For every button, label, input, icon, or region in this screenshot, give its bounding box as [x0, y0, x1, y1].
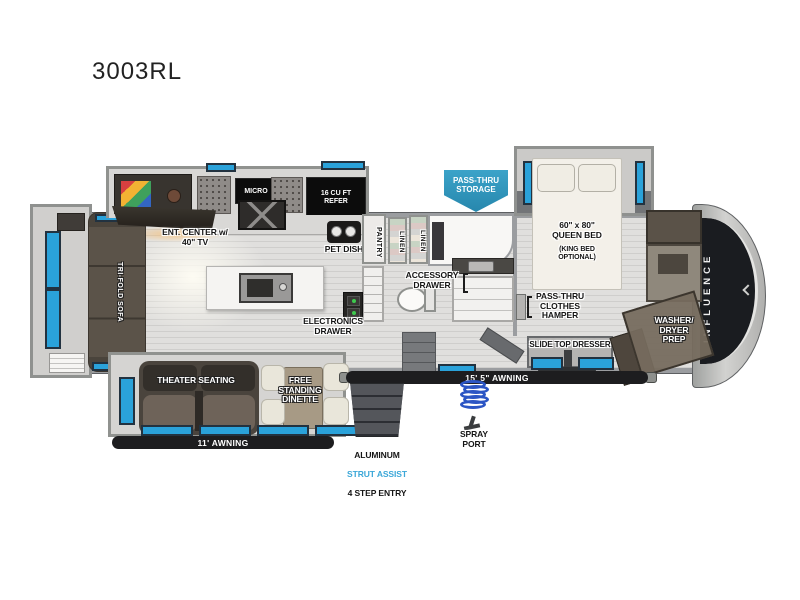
led-light — [352, 299, 356, 303]
floor-mat — [578, 357, 614, 370]
entry-steps — [349, 383, 405, 437]
drawer-stack — [362, 266, 384, 322]
entry-steps-label: ALUMINUM STRUT ASSIST 4 STEP ENTRY — [322, 441, 432, 508]
washer-dryer-label: WASHER/ DRYER PREP — [648, 316, 700, 345]
pillow — [537, 164, 575, 192]
faucet — [279, 283, 287, 291]
entry-door-landing — [402, 332, 436, 372]
dish-bowl — [331, 226, 342, 237]
label-bracket — [527, 296, 532, 318]
kitchen-window — [321, 161, 365, 170]
king-option-label: (KING BED OPTIONAL) — [537, 246, 617, 262]
floorplan-canvas: 3003RL TRI-FOLD SOFA MICRO 16 CU FT REFE… — [0, 0, 800, 600]
vanity-sink — [468, 261, 494, 272]
hamper-label: PASS-THRU CLOTHES HAMPER — [534, 292, 586, 321]
rear-awning: 11' AWNING — [112, 436, 334, 449]
pet-dish-label: PET DISH — [320, 245, 368, 255]
living-window — [119, 377, 135, 425]
dresser-label: SLIDE TOP DRESSER — [528, 341, 612, 350]
floor-mat — [141, 425, 193, 436]
pet-dish — [327, 221, 361, 243]
tri-fold-sofa-label: TRI-FOLD SOFA — [107, 246, 123, 338]
dish-bowl — [345, 226, 356, 237]
refrigerator: 16 CU FT REFER — [306, 177, 366, 219]
theater-seating-label: THEATER SEATING — [136, 376, 256, 386]
entry-label-line2: STRUT ASSIST — [322, 470, 432, 480]
label-bracket — [463, 273, 468, 293]
ent-center-label: ENT. CENTER w/ 40" TV — [140, 228, 250, 247]
linen-label: LINEN — [390, 226, 405, 258]
sink-basin — [247, 279, 273, 297]
pass-thru-storage-banner: PASS-THRU STORAGE — [444, 170, 508, 212]
blanket-stack — [49, 353, 85, 373]
range-stove — [238, 200, 286, 230]
shower-fixture — [432, 222, 444, 260]
corner-cabinet — [57, 213, 85, 231]
rear-sofa-slide — [30, 204, 92, 378]
rear-window-mullion — [45, 287, 61, 291]
shelf-item — [658, 254, 688, 274]
speaker-panel — [197, 176, 231, 214]
spray-port-label: SPRAY PORT — [452, 430, 496, 449]
floor-mat — [199, 425, 251, 436]
clothes-hamper — [516, 294, 526, 320]
bedroom-window — [635, 161, 645, 205]
linen-label: LINEN — [411, 224, 426, 258]
overhead-cabinet — [646, 210, 702, 244]
tv-screen — [121, 181, 151, 207]
entry-label-line1: ALUMINUM — [322, 451, 432, 461]
kitchen-sink — [239, 273, 293, 303]
floor-mat — [531, 357, 563, 370]
theater-seating — [139, 361, 259, 435]
led-light — [352, 311, 356, 315]
pillow — [578, 164, 616, 192]
drawer — [347, 296, 360, 306]
kitchen-window — [206, 163, 236, 172]
queen-bed-label: 60" x 80" QUEEN BED — [532, 221, 622, 240]
electronics-drawer-label: ELECTRONICS DRAWER — [301, 317, 365, 336]
dinette-label: FREE STANDING DINETTE — [268, 376, 332, 405]
model-number: 3003RL — [92, 58, 292, 86]
entry-label-line3: 4 STEP ENTRY — [322, 489, 432, 499]
kitchen-island — [206, 266, 324, 310]
toilet — [397, 287, 427, 312]
cabinet-decor — [167, 189, 181, 203]
vanity-cabinet — [452, 276, 514, 322]
accessory-drawer-label: ACCESSORY DRAWER — [404, 271, 460, 290]
main-awning: 15' 5" AWNING — [346, 371, 648, 384]
pantry-label: PANTRY — [366, 222, 382, 262]
floor-mat — [257, 425, 309, 436]
